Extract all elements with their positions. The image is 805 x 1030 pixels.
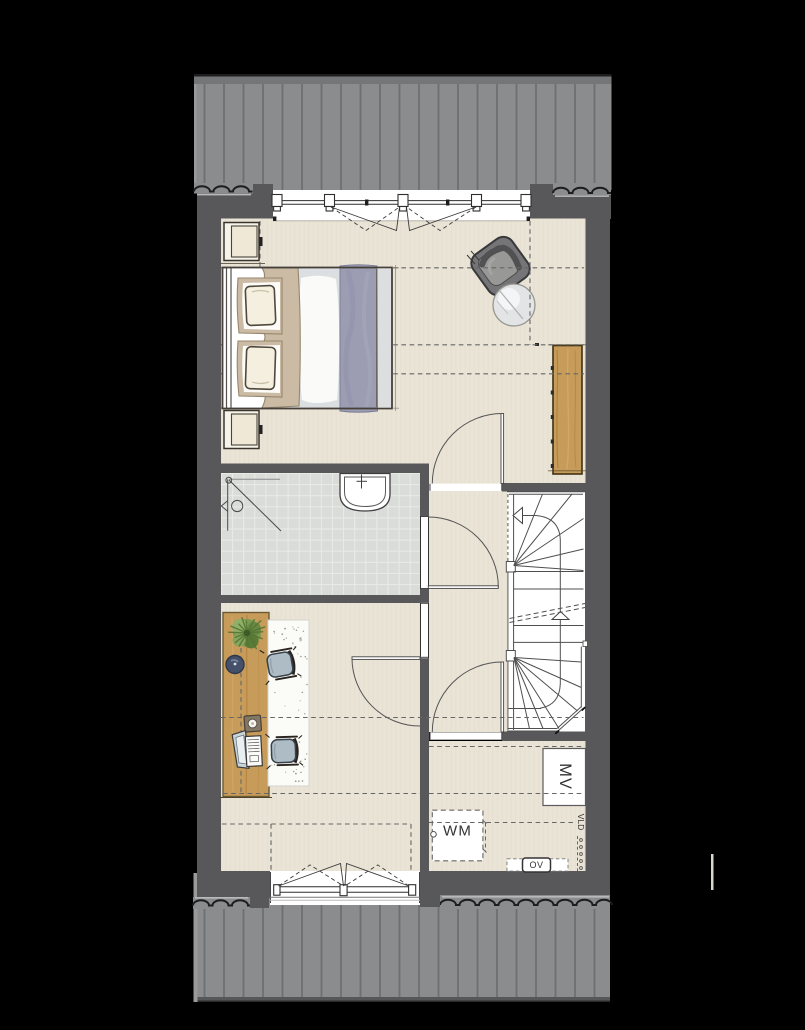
svg-text:WM: WM bbox=[443, 822, 472, 839]
svg-text:OV: OV bbox=[529, 860, 543, 870]
svg-text:MV: MV bbox=[556, 763, 574, 790]
svg-text:VLD: VLD bbox=[576, 814, 586, 831]
